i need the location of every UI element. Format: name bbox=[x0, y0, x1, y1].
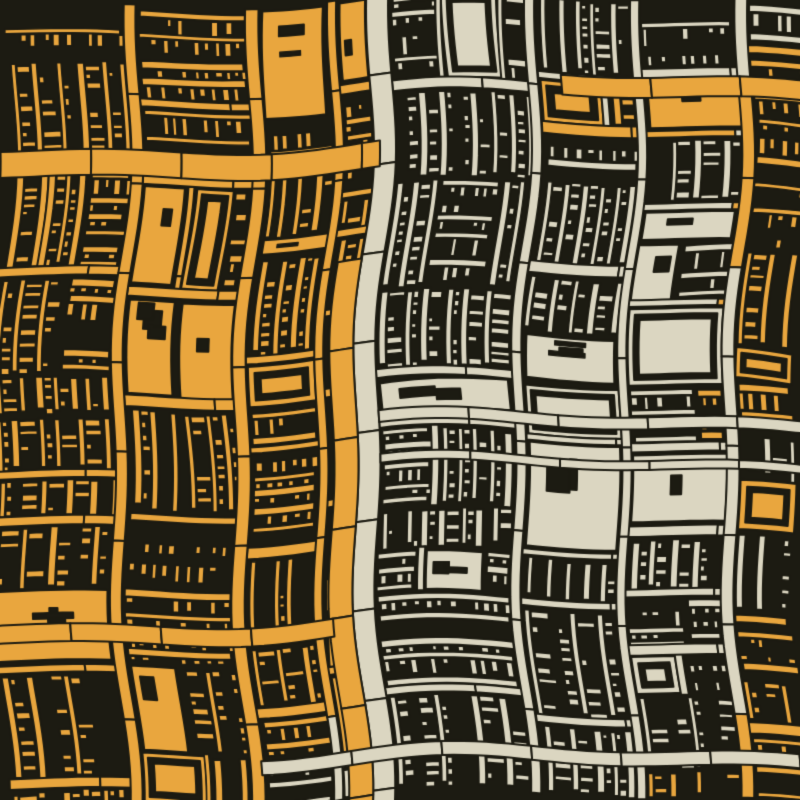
generative-art-canvas bbox=[0, 0, 800, 800]
generative-artwork bbox=[0, 0, 800, 800]
